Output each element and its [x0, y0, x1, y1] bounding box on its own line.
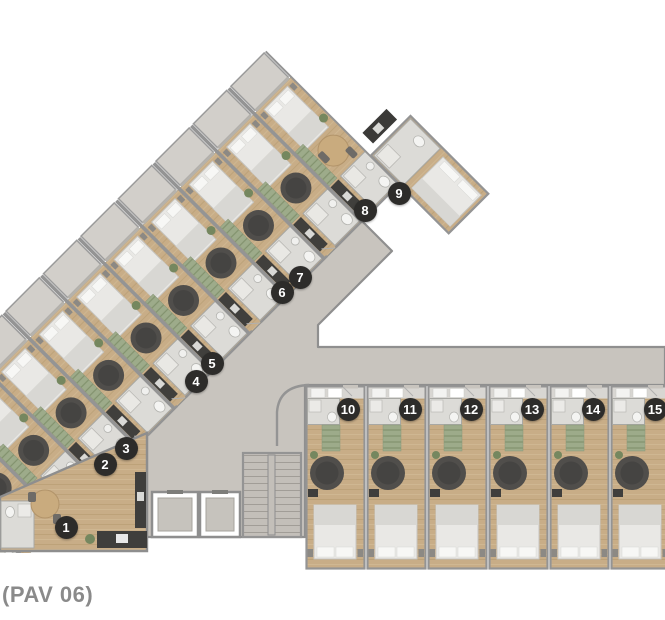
plant-icon [85, 534, 95, 544]
unit-badge-9: 9 [388, 182, 411, 205]
unit-badge-15: 15 [644, 398, 665, 421]
floor-label: (PAV 06) [2, 582, 93, 608]
unit-badge-4: 4 [185, 370, 208, 393]
unit-badge-14: 14 [582, 398, 605, 421]
unit-badge-1: 1 [55, 516, 78, 539]
unit-badge-7: 7 [289, 266, 312, 289]
unit-badge-11: 11 [399, 398, 422, 421]
unit-badge-12: 12 [460, 398, 483, 421]
elevator [152, 490, 198, 537]
staircase [243, 453, 301, 537]
unit-badge-5: 5 [201, 352, 224, 375]
floor-plan-canvas: 1 2 3 4 5 6 7 8 9 10 11 12 13 14 15 (PAV… [0, 0, 665, 620]
unit-badge-8: 8 [354, 199, 377, 222]
unit-badge-13: 13 [521, 398, 544, 421]
elevator [200, 490, 240, 537]
unit-badge-3: 3 [115, 437, 138, 460]
unit-badge-2: 2 [94, 453, 117, 476]
floor-plan [0, 0, 665, 620]
bottom-row-units [307, 385, 665, 569]
unit-badge-10: 10 [337, 398, 360, 421]
